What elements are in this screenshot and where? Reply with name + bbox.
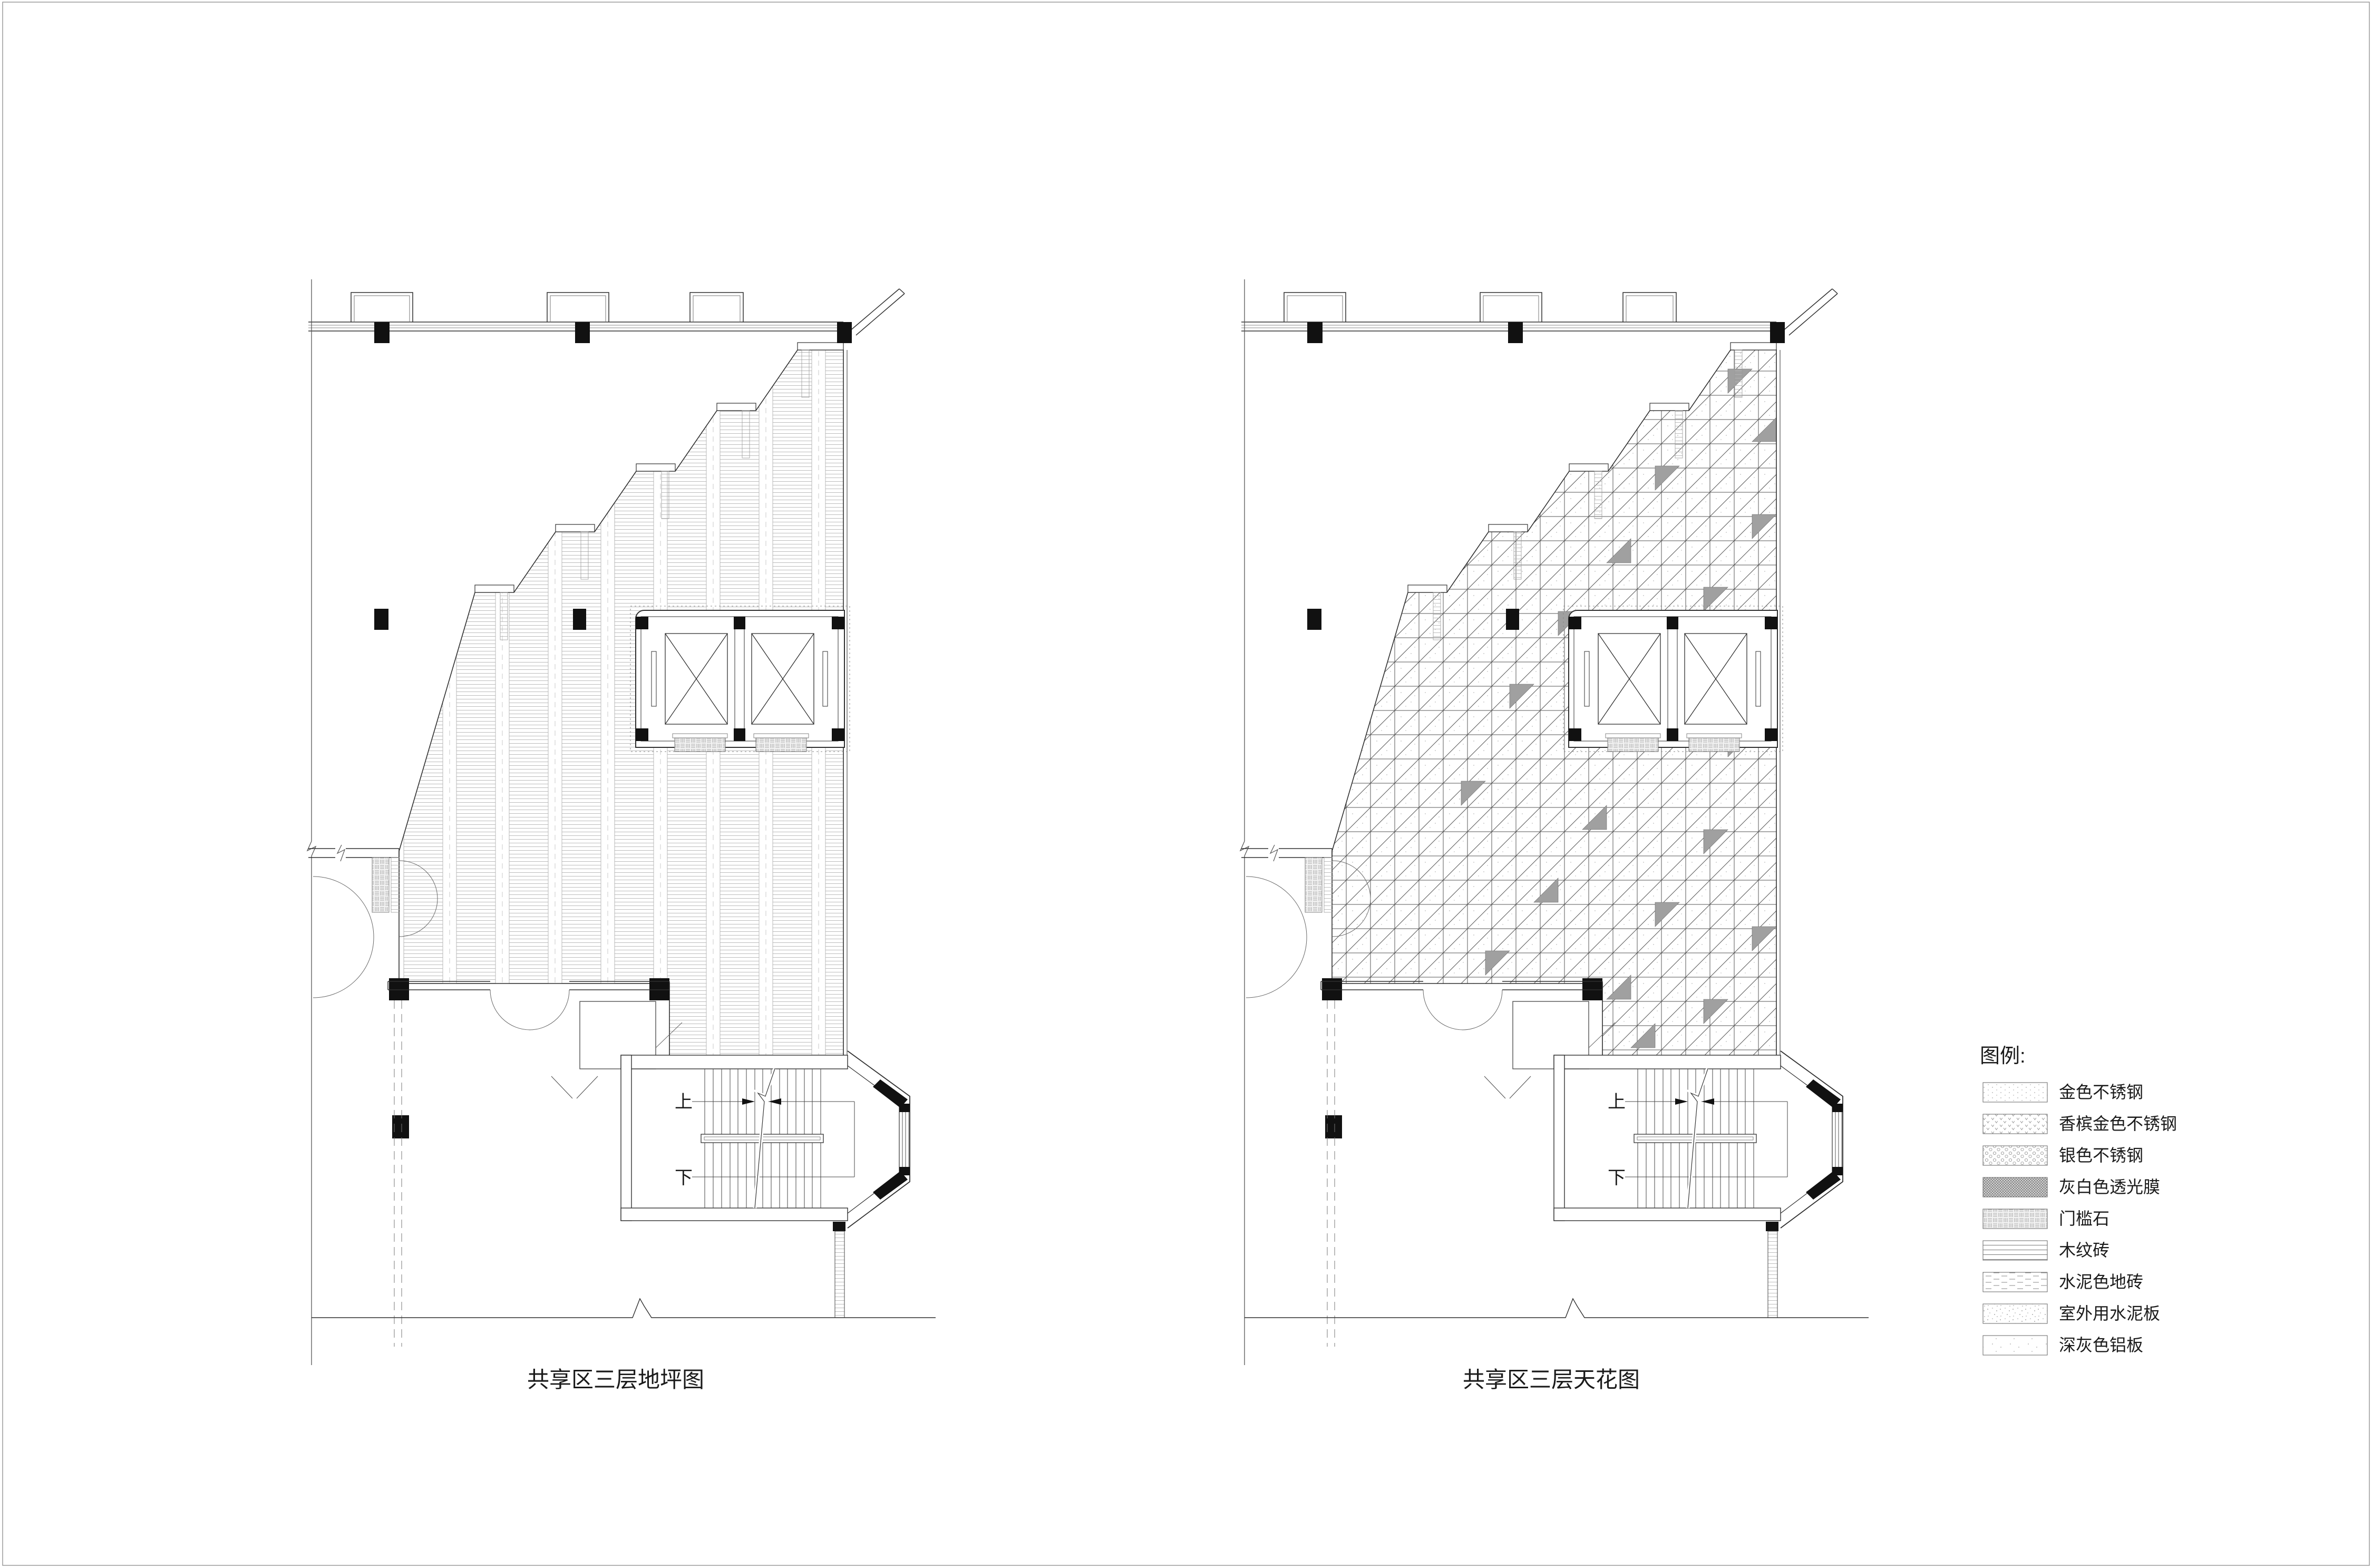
legend-swatch-outdoor-cement-board (1983, 1304, 2047, 1323)
legend-label: 金色不锈钢 (2059, 1083, 2143, 1102)
legend-label: 香槟金色不锈钢 (2059, 1114, 2177, 1133)
legend-label: 室外用水泥板 (2059, 1304, 2160, 1323)
legend-label: 银色不锈钢 (2059, 1146, 2143, 1165)
legend-swatch-cement-tile (1983, 1272, 2047, 1292)
sheet-background (0, 0, 2372, 1568)
legend-row: 灰白色透光膜 (1983, 1177, 2160, 1197)
legend-swatch-champagne-gold (1983, 1114, 2047, 1134)
architectural-drawing-sheet: 上 下 (0, 0, 2372, 1568)
legend-label: 灰白色透光膜 (2059, 1177, 2160, 1196)
plan-title-ceiling: 共享区三层天花图 (1463, 1367, 1640, 1392)
legend-row: 门槛石 (1983, 1209, 2109, 1229)
plan-title-floor: 共享区三层地坪图 (527, 1367, 704, 1392)
legend-row: 金色不锈钢 (1983, 1083, 2143, 1102)
legend-row: 银色不锈钢 (1983, 1146, 2143, 1165)
legend-swatch-dark-gray-aluminum (1983, 1336, 2047, 1355)
legend-label: 门槛石 (2059, 1209, 2109, 1228)
legend-title: 图例: (1980, 1045, 2026, 1067)
stair-down-label: 下 (675, 1168, 693, 1188)
legend-swatch-translucent-film (1983, 1177, 2047, 1197)
legend-swatch-gold-stainless (1983, 1083, 2047, 1102)
legend-swatch-threshold-stone (1983, 1209, 2047, 1229)
legend-row: 木纹砖 (1983, 1241, 2109, 1260)
legend-label: 深灰色铝板 (2059, 1336, 2143, 1355)
stair-up-label: 上 (675, 1092, 693, 1112)
legend-row: 室外用水泥板 (1983, 1304, 2160, 1323)
legend-swatch-silver-stainless (1983, 1146, 2047, 1165)
stair-up-label: 上 (1608, 1092, 1626, 1112)
legend-label: 木纹砖 (2059, 1241, 2109, 1260)
legend-swatch-wood-grain-brick (1983, 1241, 2047, 1260)
legend-row: 水泥色地砖 (1983, 1272, 2143, 1292)
legend-row: 香槟金色不锈钢 (1983, 1114, 2177, 1134)
legend-row: 深灰色铝板 (1983, 1336, 2143, 1355)
legend-label: 水泥色地砖 (2059, 1272, 2143, 1291)
stair-down-label: 下 (1608, 1168, 1626, 1188)
